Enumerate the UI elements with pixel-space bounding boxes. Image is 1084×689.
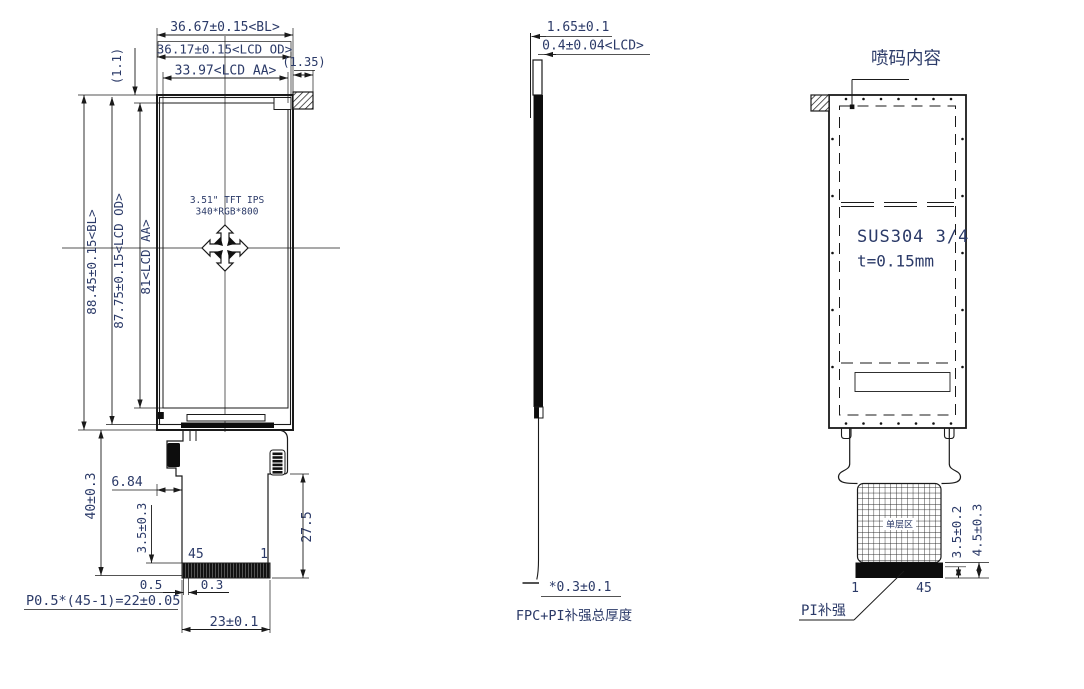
panel-spec-line2: 340*RGB*800: [196, 207, 259, 218]
dim-stiffener: 3.5±0.3: [135, 503, 149, 554]
hatched-tab: [293, 92, 313, 109]
lcd-glass-side: [533, 60, 542, 95]
bonding-bar: [181, 423, 274, 429]
back-right-dimensions: 3.5±0.2 4.5±0.3: [945, 504, 989, 578]
dim-height-lcd-aa: 81<LCD AA>: [138, 219, 153, 294]
coil-bar: [273, 453, 283, 456]
dim-top-offset: (1.1): [110, 48, 124, 84]
hatched-tab: [811, 95, 829, 111]
dim-fpc-thickness: *0.3±0.1: [549, 580, 612, 595]
tick-dot: [961, 138, 964, 141]
coil-bar: [273, 456, 283, 459]
tick-dot: [915, 422, 918, 425]
dim-connector-width: 23±0.1: [210, 614, 259, 630]
tail-shoulder-left: [839, 464, 858, 484]
dim-pad-inner: 3.5±0.2: [949, 506, 964, 559]
tick-dot: [897, 422, 900, 425]
front-fpc-tail: 45 1: [167, 430, 288, 578]
tick-dot: [831, 366, 834, 369]
alignment-mark: [158, 412, 164, 419]
dim-height-bl: 88.45±0.15<BL>: [84, 209, 99, 314]
tick-dot: [831, 252, 834, 255]
tick-dot: [950, 98, 953, 101]
coil-bar: [273, 467, 283, 470]
tape-cutout: [855, 373, 950, 392]
tick-dot: [880, 422, 883, 425]
driver-ic: [187, 415, 265, 422]
tick-dot: [897, 98, 900, 101]
coil-bar: [273, 464, 283, 467]
tick-dot: [880, 98, 883, 101]
tick-dot: [932, 422, 935, 425]
fpc-side-line: [537, 418, 539, 580]
tick-dot: [831, 195, 834, 198]
side-view-caption: FPC+PI补强总厚度: [516, 608, 632, 624]
dim-height-lcd-od: 87.75±0.15<LCD OD>: [111, 193, 126, 328]
leader-dot: [850, 105, 855, 110]
dim-pad-outer: 4.5±0.3: [970, 504, 985, 557]
material-spec-line2: t=0.15mm: [857, 252, 934, 271]
tick-dot: [862, 98, 865, 101]
tick-dot: [862, 422, 865, 425]
front-panel-outline: [157, 92, 313, 430]
front-bottom-details: [158, 412, 274, 428]
tick-dot: [950, 422, 953, 425]
dim-width-lcd-od: 36.17±0.15<LCD OD>: [157, 42, 292, 57]
tail-shoulder-right: [942, 464, 961, 484]
tick-dot: [961, 309, 964, 312]
pin-label-1: 1: [851, 581, 859, 596]
tick-dot: [915, 98, 918, 101]
dim-width-bl: 36.67±0.15<BL>: [170, 20, 280, 35]
marking-title: 喷码内容: [871, 49, 941, 69]
tick-dot: [845, 422, 848, 425]
coil-bar: [273, 471, 283, 474]
dim-pitch: P0.5*(45-1)=22±0.05: [26, 593, 180, 609]
engineering-drawing-page: 36.67±0.15<BL> 36.17±0.15<LCD OD> 33.97<…: [0, 0, 1084, 689]
front-view: 36.67±0.15<BL> 36.17±0.15<LCD OD> 33.97<…: [24, 20, 340, 633]
center-mark: [202, 225, 248, 271]
dim-lcd-thickness: 0.4±0.04<LCD>: [542, 39, 644, 54]
tick-dot: [961, 366, 964, 369]
tick-dot: [831, 309, 834, 312]
dim-total-thickness: 1.65±0.1: [547, 20, 610, 35]
single-layer-label: 单层区: [886, 519, 913, 531]
dim-pin-b: 0.3: [201, 577, 224, 592]
connector-contact-bar: [182, 563, 270, 578]
coil-bar: [273, 460, 283, 463]
dim-tail-lower: 27.5: [300, 511, 315, 542]
front-top-dimensions: 36.67±0.15<BL> 36.17±0.15<LCD OD> 33.97<…: [110, 20, 326, 103]
dim-tab-width: (1.35): [282, 55, 325, 69]
stiffener-label: PI补强: [801, 603, 846, 619]
dim-pin-a: 0.5: [140, 577, 163, 592]
side-view: 1.65±0.1 0.4±0.04<LCD> *0.3±0.1 FPC+PI补强…: [516, 20, 650, 624]
back-fpc-tail: 单层区 1 45: [839, 428, 961, 596]
panel-spec-line1: 3.51" TFT IPS: [190, 195, 265, 206]
tick-dot: [961, 195, 964, 198]
material-spec-line1: SUS304 3/4: [857, 227, 969, 247]
tick-dot: [932, 98, 935, 101]
dim-width-lcd-aa: 33.97<LCD AA>: [175, 64, 277, 79]
dim-notch: 6.84: [111, 475, 142, 490]
corner-notch: [274, 98, 291, 110]
module-foot-fill: [535, 408, 539, 419]
pin-label-45: 45: [916, 581, 932, 596]
pin-label-1: 1: [260, 547, 268, 562]
center-mark-cross: [202, 225, 248, 271]
tick-dot: [961, 252, 964, 255]
fpc-component: [168, 443, 181, 467]
tick-dot: [831, 138, 834, 141]
front-left-dimensions: 88.45±0.15<BL> 87.75±0.15<LCD OD> 81<LCD…: [78, 95, 164, 430]
tick-dot: [845, 98, 848, 101]
module-body-side: [534, 95, 544, 407]
back-view: 喷码内容 SUS304 3/4 t=0.15mm 单层区 1 45: [799, 49, 989, 620]
dim-tail-length: 40±0.3: [84, 473, 99, 520]
leader-line: [854, 571, 904, 620]
pin-label-45: 45: [188, 547, 204, 562]
drawing-svg: 36.67±0.15<BL> 36.17±0.15<LCD OD> 33.97<…: [0, 0, 1084, 689]
